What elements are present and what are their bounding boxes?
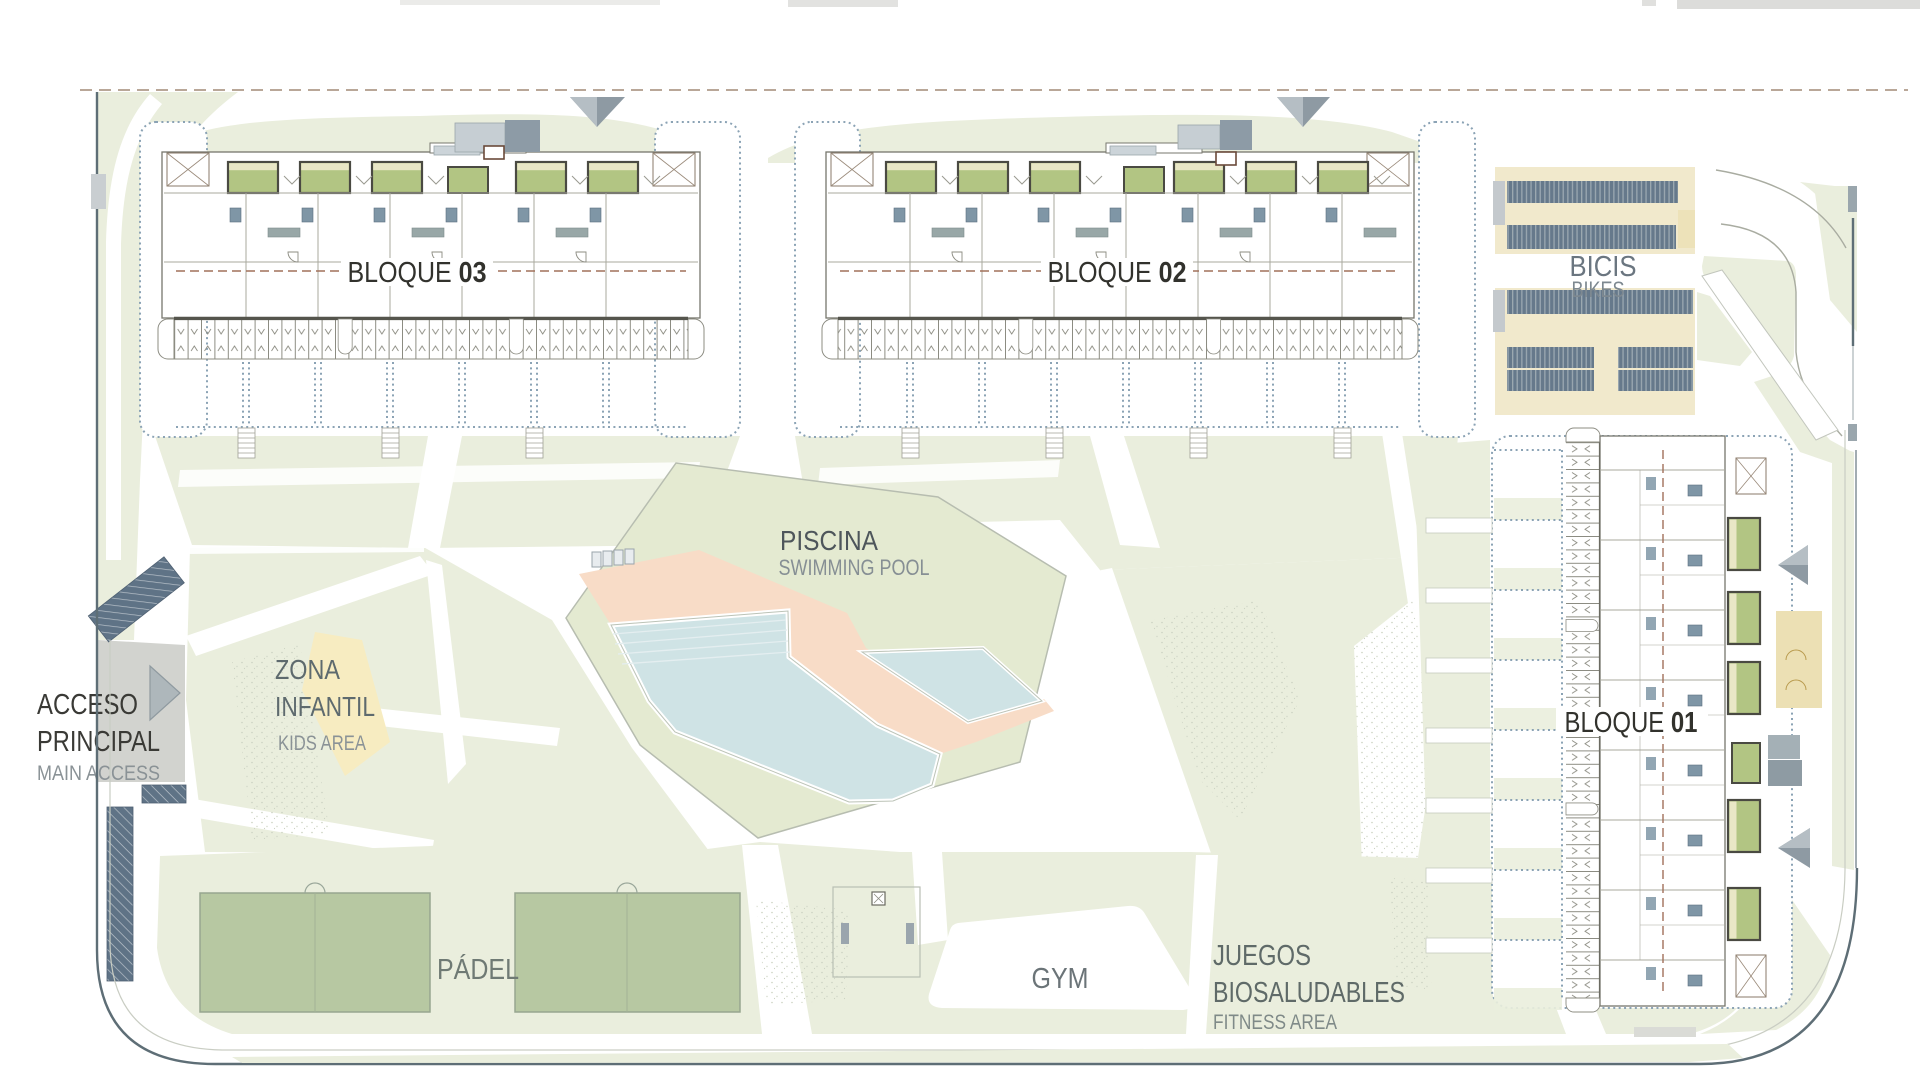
svg-text:MAIN ACCESS: MAIN ACCESS [37, 762, 160, 785]
svg-text:BIKES: BIKES [1572, 277, 1625, 302]
svg-text:SWIMMING POOL: SWIMMING POOL [779, 555, 930, 580]
svg-text:ACCESO: ACCESO [37, 689, 138, 721]
svg-text:BLOQUE 02: BLOQUE 02 [1048, 257, 1187, 289]
svg-text:ZONA: ZONA [275, 654, 340, 685]
svg-text:BLOQUE 03: BLOQUE 03 [348, 257, 487, 289]
svg-text:PISCINA: PISCINA [780, 525, 878, 556]
svg-text:KIDS AREA: KIDS AREA [278, 732, 366, 755]
svg-text:INFANTIL: INFANTIL [275, 691, 375, 722]
svg-text:BLOQUE 01: BLOQUE 01 [1565, 707, 1698, 739]
svg-text:PÁDEL: PÁDEL [437, 953, 519, 986]
svg-text:GYM: GYM [1032, 963, 1089, 995]
svg-text:PRINCIPAL: PRINCIPAL [37, 726, 160, 758]
svg-text:JUEGOS: JUEGOS [1213, 940, 1311, 972]
svg-text:BIOSALUDABLES: BIOSALUDABLES [1213, 977, 1405, 1009]
svg-text:FITNESS AREA: FITNESS AREA [1213, 1011, 1337, 1034]
